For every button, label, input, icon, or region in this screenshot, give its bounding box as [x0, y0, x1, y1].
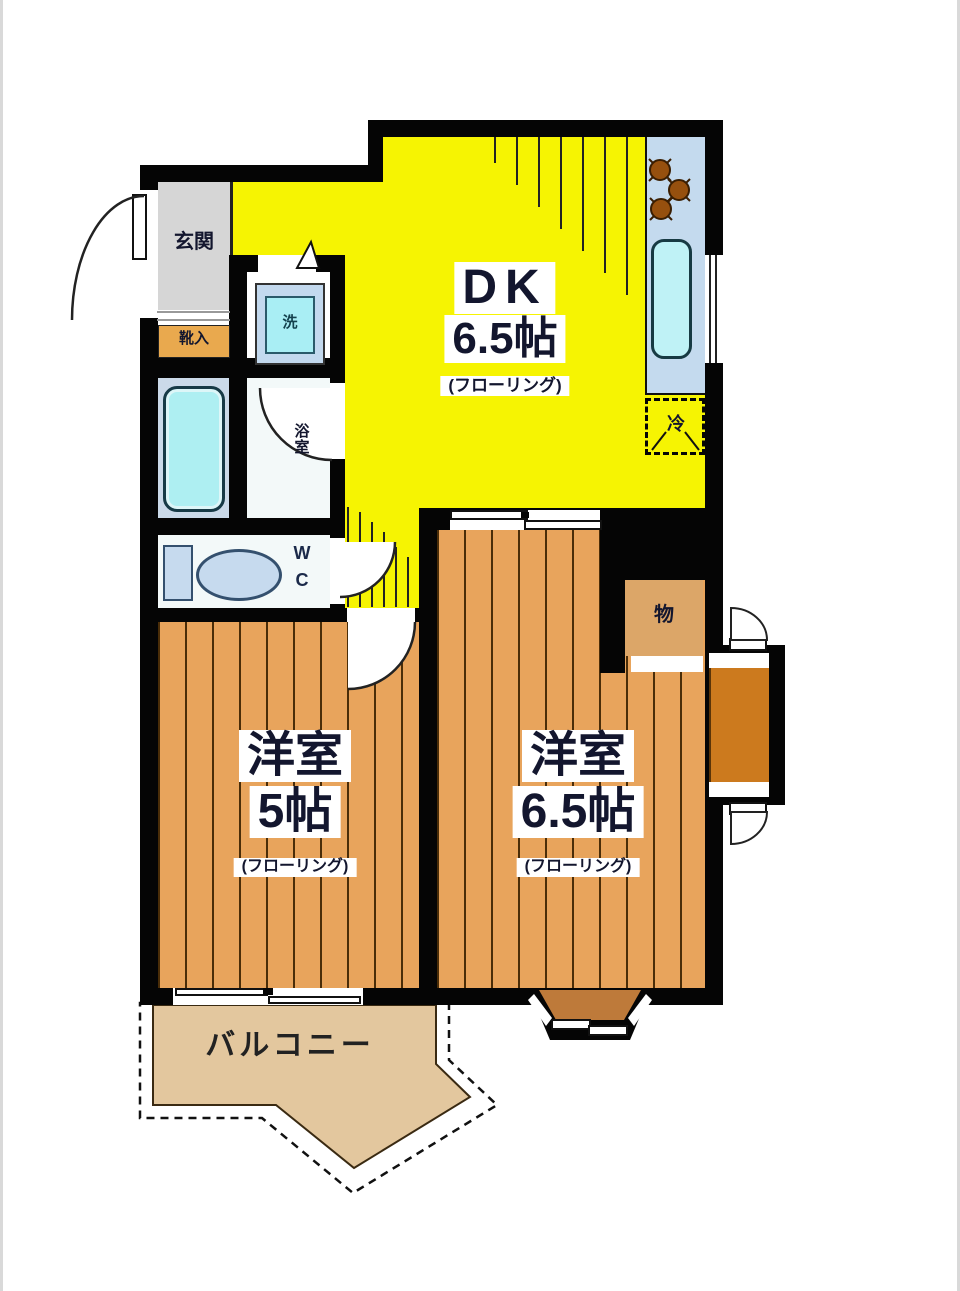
dk-label: DK: [454, 262, 555, 314]
room5-label: 洋室: [239, 730, 351, 782]
sliding-door-panel-2: [524, 520, 602, 530]
washroom-door-opening: [258, 255, 316, 272]
floor-plan-page: DK 6.5帖 (フローリング) 洋室 5帖 (フローリング) 洋室 6.5帖 …: [0, 0, 960, 1291]
wc-door-opening: [330, 538, 345, 604]
wall-between-rooms: [419, 508, 437, 1005]
toilet-bowl: [196, 549, 282, 601]
shoe-cabinet-label: 靴入: [179, 331, 209, 347]
bathroom-door-opening: [330, 383, 345, 459]
bathtub: [163, 386, 225, 512]
wall-wc-top: [140, 518, 345, 535]
room5-size-label: 5帖: [250, 786, 341, 838]
kitchen-window-track-1: [709, 255, 711, 363]
outer-closet-opening-bottom: [709, 782, 769, 797]
refrigerator-label: 冷: [667, 415, 685, 434]
kitchen-window: [705, 255, 723, 363]
sliding-door-notch: [521, 512, 529, 518]
bathroom-label-line1: 浴: [294, 424, 309, 440]
storage-door-opening: [631, 656, 703, 672]
bay-window-panel-1: [552, 1020, 590, 1029]
outer-closet: [709, 668, 769, 782]
outer-closet-opening-top: [709, 653, 769, 668]
room65-floor-type-label: (フローリング): [517, 858, 640, 877]
entrance-label: 玄関: [174, 232, 214, 253]
wall-top-left: [140, 165, 383, 182]
kitchen-sink: [651, 239, 692, 359]
bathroom-floor: [247, 378, 330, 518]
storage-label: 物: [654, 605, 674, 626]
outer-closet-arc-top: [731, 608, 767, 640]
balcony-label: バルコニー: [205, 1030, 374, 1062]
room5-door-opening: [347, 608, 415, 622]
toilet-tank: [163, 545, 193, 601]
wall-storage-block: [600, 508, 723, 580]
room65-size-label: 6.5帖: [513, 786, 644, 838]
wall-mid-vertical: [229, 258, 247, 518]
kitchen-window-track-2: [715, 255, 717, 363]
room65-label: 洋室: [522, 730, 634, 782]
entrance-door-leaf: [132, 194, 147, 260]
wall-storage-left: [600, 580, 625, 673]
outer-closet-door-leaf-bottom: [729, 802, 767, 815]
bay-window-panel-2: [589, 1026, 627, 1035]
dk-floor-type-label: (フローリング): [440, 376, 569, 396]
wall-top-dk: [368, 120, 723, 137]
room5-floor-type-label: (フローリング): [234, 858, 357, 877]
outer-closet-arc-bottom: [731, 812, 767, 844]
wc-label-line2: C: [294, 567, 311, 594]
room5-window-panel-2: [268, 996, 361, 1004]
wc-label-line1: W: [294, 540, 311, 567]
entrance-step-line-2: [157, 319, 230, 321]
bathroom-label-line2: 室: [294, 440, 309, 456]
washing-machine-label: 洗: [282, 315, 297, 331]
dk-size-label: 6.5帖: [444, 315, 565, 363]
room5-window-notch: [263, 988, 273, 995]
page-left-edge: [0, 0, 3, 1291]
entrance-step-line-1: [157, 311, 230, 313]
room5-window-panel-1: [175, 988, 268, 996]
sliding-door-panel-1: [450, 510, 528, 520]
wc-label: W C: [294, 540, 311, 594]
bathroom-label: 浴 室: [294, 424, 309, 456]
outer-closet-door-leaf-top: [729, 638, 767, 651]
